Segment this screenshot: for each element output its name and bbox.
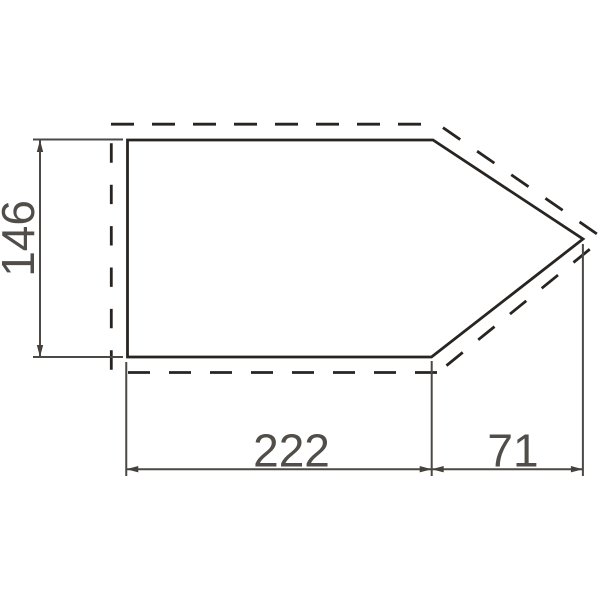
svg-text:146: 146 [0,200,44,277]
svg-text:71: 71 [487,425,538,477]
svg-text:222: 222 [253,425,330,477]
